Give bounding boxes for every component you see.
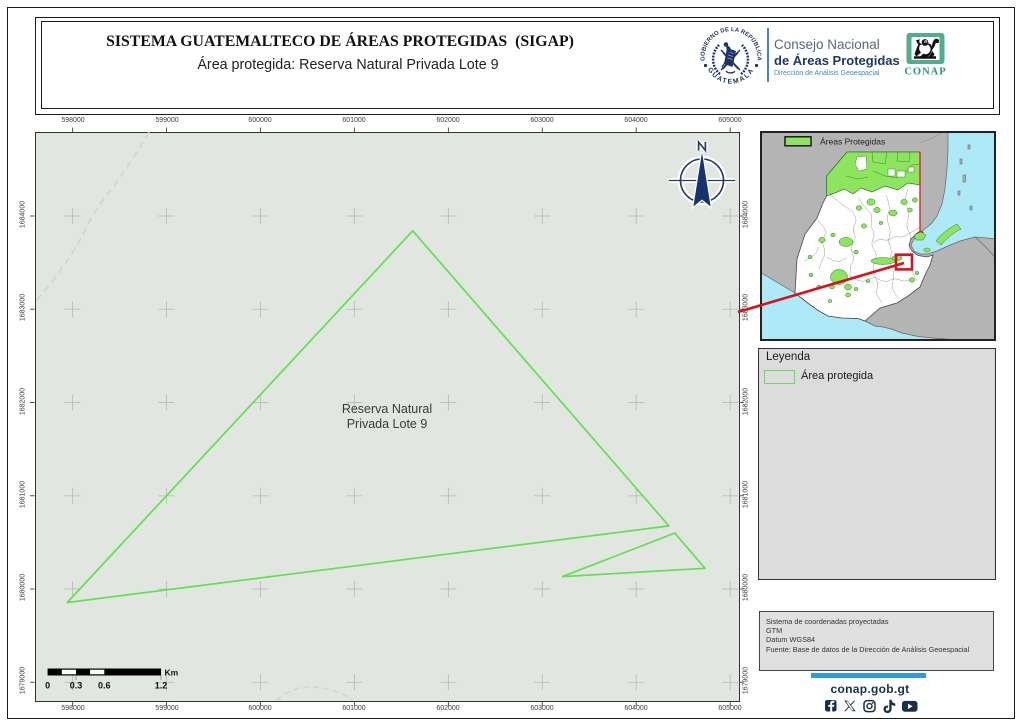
svg-text:0: 0 <box>45 681 50 691</box>
svg-text:Reserva Natural: Reserva Natural <box>342 402 432 416</box>
svg-text:Áreas Protegidas: Áreas Protegidas <box>820 137 885 147</box>
svg-text:Privada Lote 9: Privada Lote 9 <box>347 417 428 431</box>
svg-text:Km: Km <box>165 668 179 678</box>
svg-text:1.2: 1.2 <box>155 681 168 691</box>
svg-text:GUATEMALA: GUATEMALA <box>706 67 756 86</box>
svg-text:CONAP: CONAP <box>904 67 946 78</box>
svg-text:0.6: 0.6 <box>98 681 111 691</box>
svg-text:0.3: 0.3 <box>70 681 83 691</box>
